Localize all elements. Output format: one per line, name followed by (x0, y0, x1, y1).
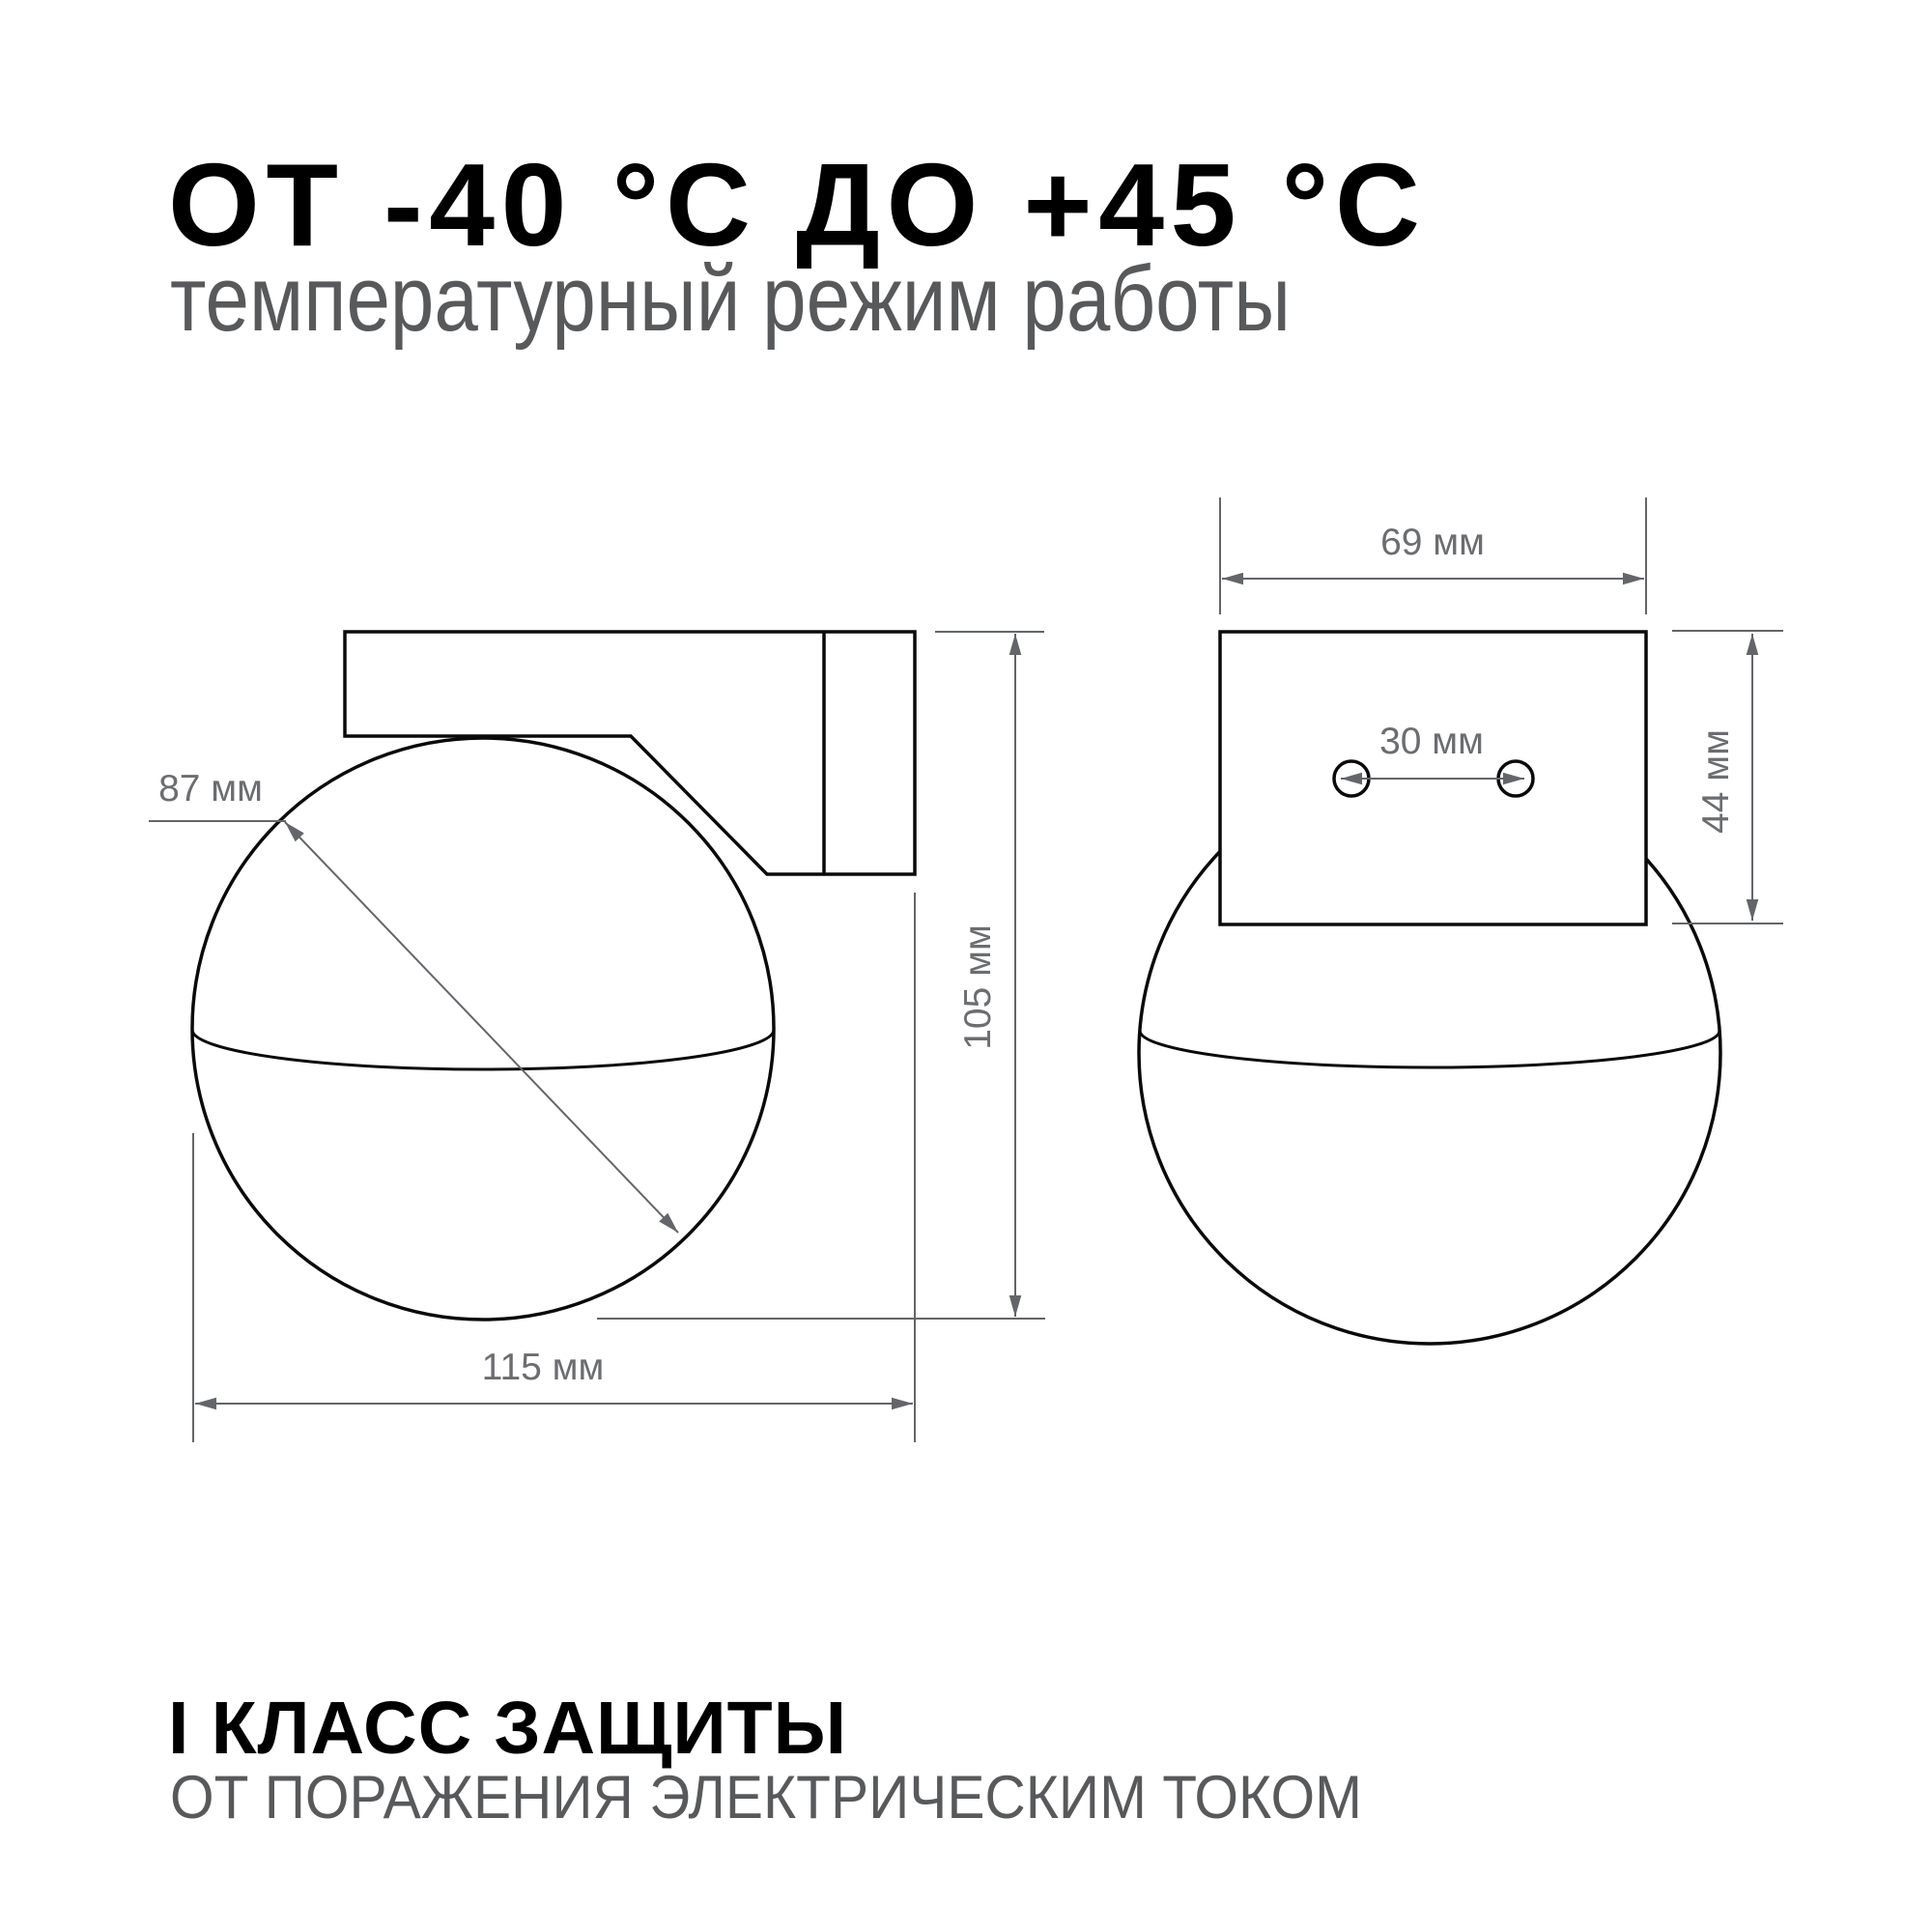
svg-text:69 мм: 69 мм (1380, 522, 1485, 563)
svg-text:ОТ ПОРАЖЕНИЯ ЭЛЕКТРИЧЕСКИМ ТОК: ОТ ПОРАЖЕНИЯ ЭЛЕКТРИЧЕСКИМ ТОКОМ (170, 1764, 1362, 1832)
svg-text:87 мм: 87 мм (158, 768, 263, 810)
svg-text:115 мм: 115 мм (482, 1347, 605, 1388)
svg-text:температурный режим работы: температурный режим работы (170, 247, 1291, 351)
svg-text:105 мм: 105 мм (957, 924, 999, 1050)
svg-text:30 мм: 30 мм (1379, 721, 1484, 762)
svg-text:44 мм: 44 мм (1695, 729, 1737, 834)
svg-text:I КЛАСС ЗАЩИТЫ: I КЛАСС ЗАЩИТЫ (168, 1687, 846, 1770)
